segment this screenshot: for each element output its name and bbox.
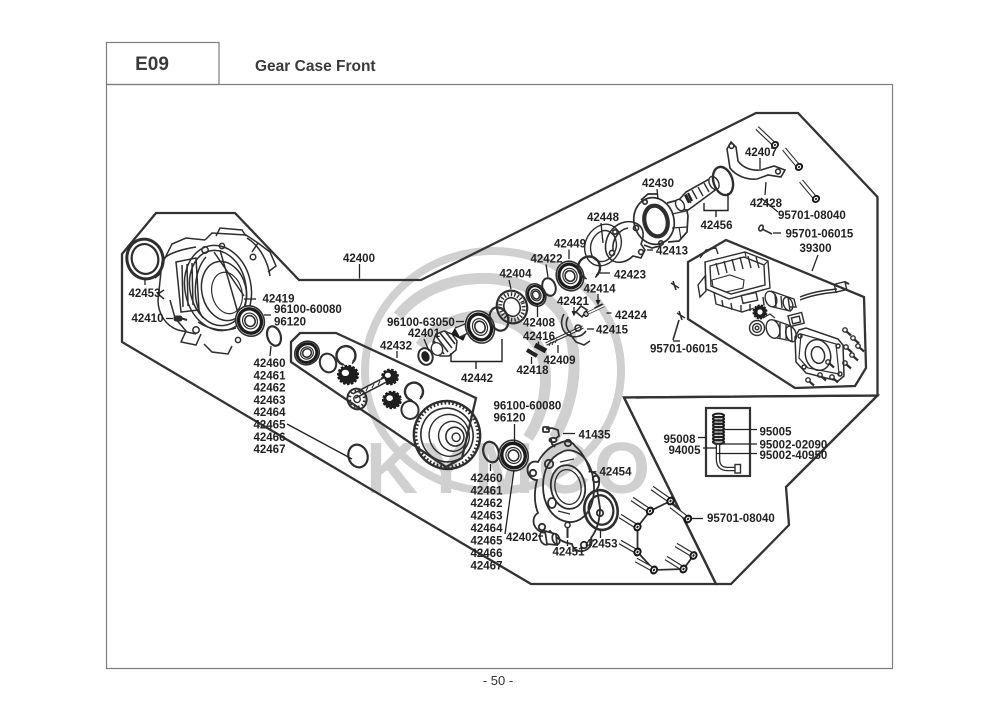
svg-text:42462: 42462 <box>254 383 286 395</box>
svg-text:42454: 42454 <box>600 467 633 479</box>
svg-text:42453: 42453 <box>586 539 618 551</box>
svg-text:96120: 96120 <box>274 317 306 329</box>
svg-text:42460: 42460 <box>471 473 503 485</box>
svg-text:42466: 42466 <box>471 548 503 560</box>
svg-text:42418: 42418 <box>517 365 550 377</box>
svg-text:42464: 42464 <box>471 523 504 535</box>
svg-text:42451: 42451 <box>553 547 586 559</box>
svg-text:E09: E09 <box>135 54 169 75</box>
svg-text:42461: 42461 <box>254 370 287 382</box>
svg-text:42415: 42415 <box>596 325 629 337</box>
svg-text:41435: 41435 <box>579 430 612 442</box>
svg-text:42430: 42430 <box>642 178 674 190</box>
svg-text:42424: 42424 <box>615 310 648 322</box>
svg-text:42463: 42463 <box>254 395 286 407</box>
svg-text:42467: 42467 <box>254 444 286 456</box>
svg-text:42423: 42423 <box>614 270 646 282</box>
svg-text:96100-60080: 96100-60080 <box>274 304 342 316</box>
svg-text:95002-40950: 95002-40950 <box>760 450 828 462</box>
svg-text:42407: 42407 <box>745 147 777 159</box>
svg-text:95005: 95005 <box>760 427 793 439</box>
svg-text:95701-08040: 95701-08040 <box>707 513 775 525</box>
svg-text:42442: 42442 <box>461 373 493 385</box>
svg-text:42456: 42456 <box>701 220 733 232</box>
svg-text:42414: 42414 <box>584 284 617 296</box>
svg-text:42448: 42448 <box>587 212 620 224</box>
svg-text:42401: 42401 <box>408 328 441 340</box>
svg-text:42416: 42416 <box>523 331 555 343</box>
svg-text:42465: 42465 <box>471 536 504 548</box>
svg-text:42413: 42413 <box>656 246 688 258</box>
svg-text:Gear Case Front: Gear Case Front <box>255 58 376 75</box>
svg-text:42449: 42449 <box>554 239 586 251</box>
svg-text:42466: 42466 <box>254 432 286 444</box>
svg-text:- 50 -: - 50 - <box>483 673 513 688</box>
svg-text:42460: 42460 <box>254 358 286 370</box>
svg-text:42453: 42453 <box>129 288 161 300</box>
svg-text:42400: 42400 <box>343 253 375 265</box>
svg-text:42408: 42408 <box>523 318 556 330</box>
svg-text:42404: 42404 <box>500 269 533 281</box>
svg-text:96100-60080: 96100-60080 <box>494 401 562 413</box>
svg-text:42421: 42421 <box>557 296 590 308</box>
svg-text:95701-06015: 95701-06015 <box>786 229 854 241</box>
svg-text:42402: 42402 <box>506 532 538 544</box>
svg-text:42410: 42410 <box>132 313 164 325</box>
svg-text:42467: 42467 <box>471 561 503 573</box>
svg-text:42428: 42428 <box>750 198 783 210</box>
svg-text:42464: 42464 <box>254 407 287 419</box>
svg-text:95701-08040: 95701-08040 <box>778 210 846 222</box>
svg-text:42422: 42422 <box>531 254 563 266</box>
svg-text:42461: 42461 <box>471 486 504 498</box>
svg-text:42465: 42465 <box>254 420 287 432</box>
svg-text:95701-06015: 95701-06015 <box>650 344 718 356</box>
svg-text:42462: 42462 <box>471 498 503 510</box>
svg-text:39300: 39300 <box>800 243 832 255</box>
svg-text:42463: 42463 <box>471 511 503 523</box>
svg-text:42432: 42432 <box>380 341 412 353</box>
svg-text:96120: 96120 <box>494 413 526 425</box>
svg-text:94005: 94005 <box>669 445 702 457</box>
